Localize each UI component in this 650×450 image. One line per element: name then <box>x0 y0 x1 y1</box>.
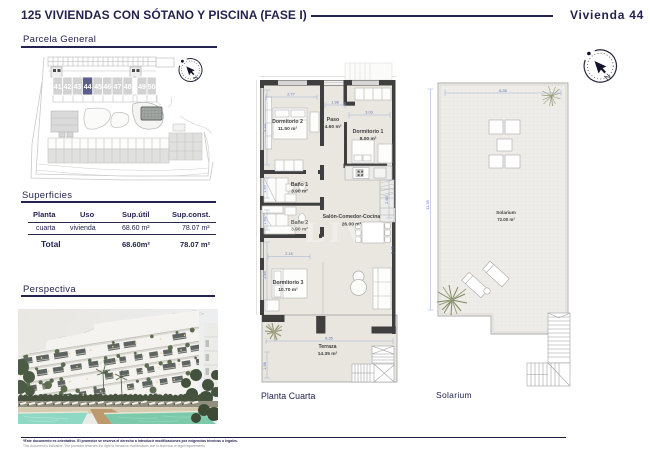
svg-text:44: 44 <box>84 84 92 91</box>
svg-text:11.35: 11.35 <box>425 199 430 209</box>
svg-text:3.03: 3.03 <box>365 111 372 115</box>
svg-text:Salón-Comedor-Cocina: Salón-Comedor-Cocina <box>323 214 381 220</box>
svg-text:43: 43 <box>74 84 82 91</box>
svg-text:10.70 m²: 10.70 m² <box>278 287 298 293</box>
svg-text:Solarium: Solarium <box>496 210 516 215</box>
svg-text:6.35: 6.35 <box>325 337 332 341</box>
svg-text:49: 49 <box>138 84 146 91</box>
svg-text:2.60: 2.60 <box>385 196 389 203</box>
svg-text:1.98: 1.98 <box>263 362 267 369</box>
svg-text:8.00 m²: 8.00 m² <box>360 136 377 142</box>
svg-text:Dormitorio 3: Dormitorio 3 <box>273 280 304 286</box>
svg-text:72.00 m²: 72.00 m² <box>497 217 515 222</box>
svg-text:47: 47 <box>114 84 122 91</box>
svg-text:Paso: Paso <box>327 117 339 123</box>
svg-text:3.90 m²: 3.90 m² <box>291 189 308 195</box>
svg-text:N: N <box>602 72 612 82</box>
svg-text:3.90 m²: 3.90 m² <box>291 227 308 233</box>
svg-text:50: 50 <box>148 84 156 91</box>
svg-text:4.10: 4.10 <box>263 124 267 131</box>
svg-text:46: 46 <box>103 84 111 91</box>
svg-text:4.60 m²: 4.60 m² <box>325 124 342 130</box>
svg-text:6.36: 6.36 <box>499 88 508 93</box>
svg-text:Baño 2: Baño 2 <box>291 220 308 226</box>
svg-text:2.16: 2.16 <box>285 252 292 256</box>
svg-text:1.98: 1.98 <box>331 101 338 105</box>
svg-text:Baño 1: Baño 1 <box>291 182 308 188</box>
svg-text:2.77: 2.77 <box>287 93 294 97</box>
svg-text:26.00 m²: 26.00 m² <box>342 222 362 228</box>
svg-text:41: 41 <box>54 84 62 91</box>
svg-text:LIVCO: LIVCO <box>305 216 410 249</box>
svg-text:14.35 m²: 14.35 m² <box>318 351 338 357</box>
svg-text:42: 42 <box>64 84 72 91</box>
svg-text:Terraza: Terraza <box>318 344 336 350</box>
svg-text:1.40: 1.40 <box>263 217 267 224</box>
svg-text:2.84: 2.84 <box>263 271 267 278</box>
svg-text:Dormitorio 1: Dormitorio 1 <box>353 129 384 135</box>
svg-text:1.40: 1.40 <box>263 185 267 192</box>
svg-text:11.50 m²: 11.50 m² <box>278 126 298 132</box>
svg-text:48: 48 <box>124 84 132 91</box>
svg-text:45: 45 <box>94 84 102 91</box>
svg-text:Dormitorio 2: Dormitorio 2 <box>272 119 303 125</box>
